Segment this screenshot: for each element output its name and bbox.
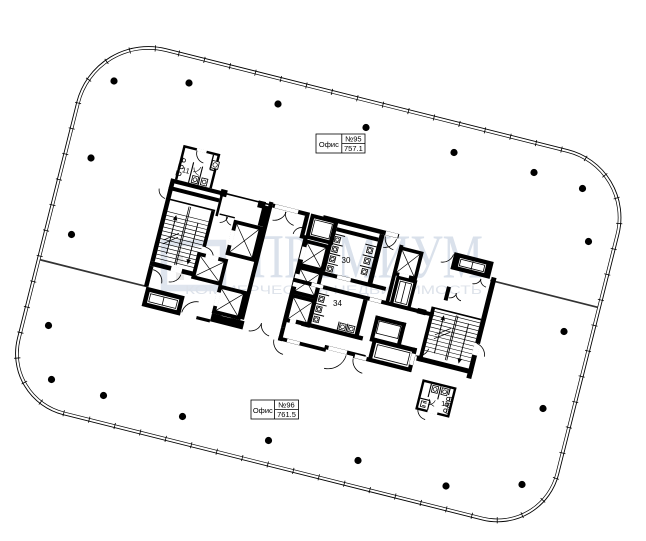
svg-text:757.1: 757.1 [344, 144, 363, 153]
svg-text:Офис: Офис [253, 406, 273, 415]
svg-text:11: 11 [441, 399, 449, 408]
svg-text:761.5: 761.5 [277, 410, 296, 419]
svg-text:30: 30 [342, 256, 351, 265]
svg-text:№95: №95 [345, 135, 361, 144]
svg-text:34: 34 [333, 299, 342, 308]
svg-text:ПРЕМИУМ: ПРЕМИУМ [251, 224, 483, 292]
svg-text:№96: №96 [278, 401, 294, 410]
svg-text:Офис: Офис [319, 140, 339, 149]
